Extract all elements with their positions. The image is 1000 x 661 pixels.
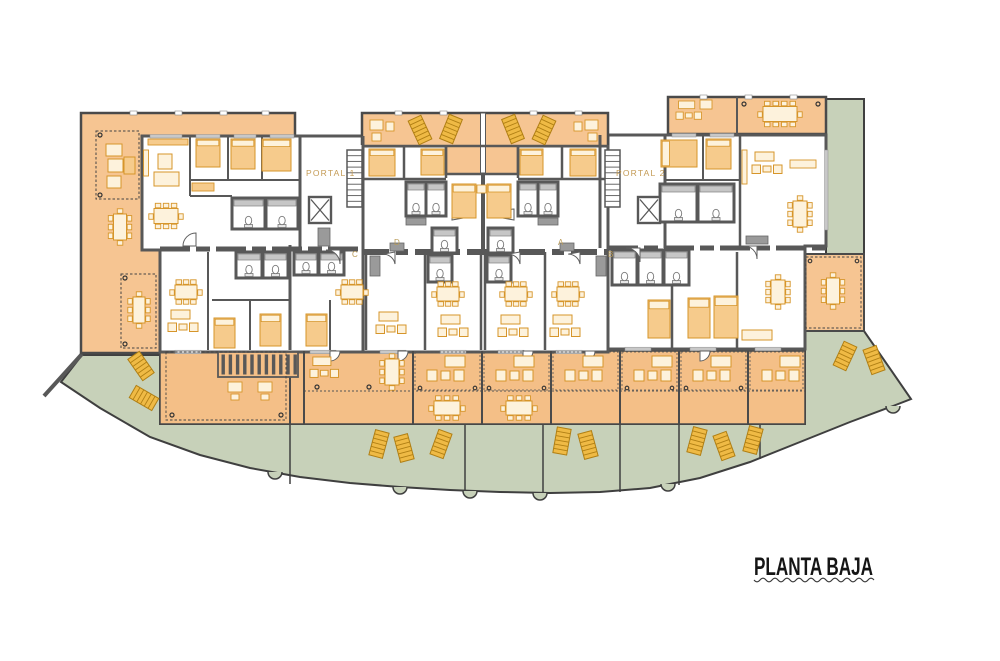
svg-text:PORTAL 2: PORTAL 2 (616, 168, 666, 178)
svg-text:PLANTA BAJA: PLANTA BAJA (754, 553, 873, 581)
svg-text:PORTAL 1: PORTAL 1 (306, 168, 356, 178)
svg-text:A: A (558, 238, 564, 247)
svg-text:C: C (352, 250, 358, 259)
svg-text:B: B (608, 250, 613, 259)
svg-text:D: D (394, 238, 400, 247)
